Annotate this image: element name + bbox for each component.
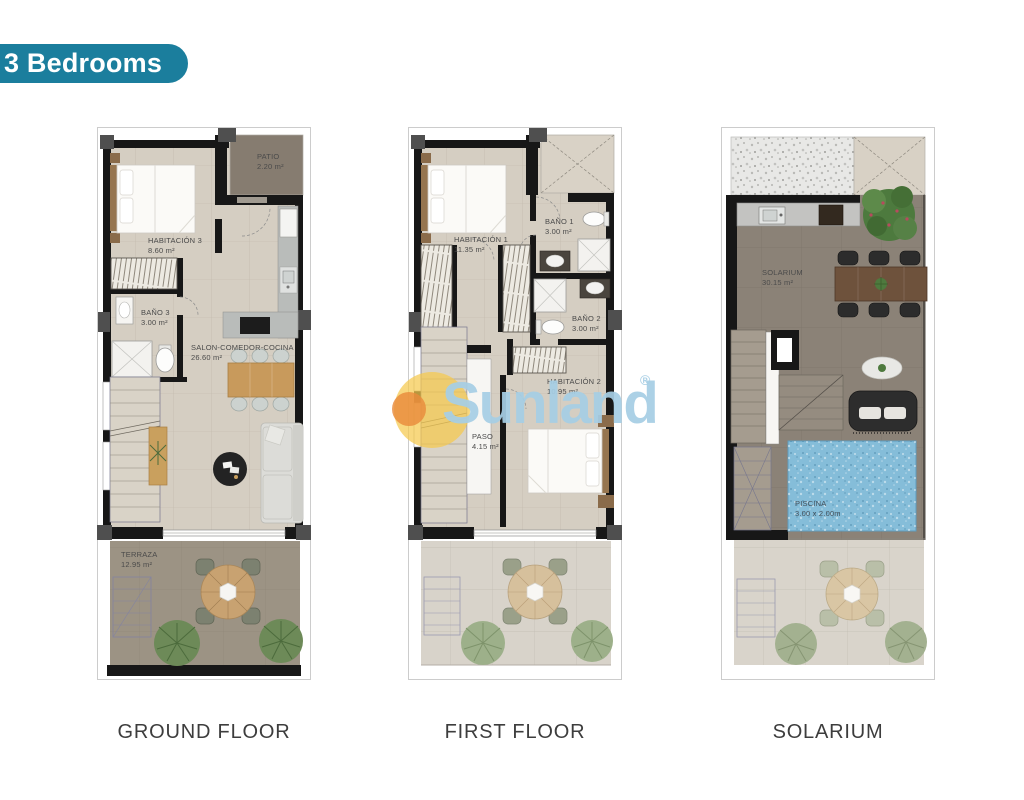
closet [513,347,566,373]
caption-first-floor: FIRST FLOOR [408,721,622,744]
bed [421,153,506,243]
tile-zone [854,137,925,195]
wardrobe [421,245,452,332]
coffee-table [862,357,902,379]
sofa [849,391,917,433]
coffee-table [213,452,247,486]
registered-mark: ® [640,372,650,388]
room-label-solarium: SOLARIUM30.15 m² [762,268,803,288]
tree-plant [862,186,917,241]
terrace-table [503,559,567,624]
room-label-patio: PATIO2.20 m² [257,152,284,172]
sliding-door [163,530,285,536]
room-label-paso: PASO4.15 m² [472,432,499,452]
wardrobe [111,258,177,289]
solarium-dining-table [835,251,927,317]
first-floor-drawing [408,127,622,680]
bed [110,153,195,243]
solarium-plan: SOLARIUM30.15 m² PISCINA3.00 x 2.00m [721,127,935,680]
solarium-drawing [721,127,935,680]
floorplan-page: 3 Bedrooms [0,0,1024,800]
room-label-habitacion-1: HABITACIÓN 111.35 m² [454,235,508,255]
console-plant [149,427,167,485]
room-label-bano-1: BAÑO 13.00 m² [545,217,574,237]
room-label-habitacion-3: HABITACIÓN 38.60 m² [148,236,202,256]
wardrobe [503,245,530,332]
room-label-habitacion-2: HABITACIÓN 210.95 m² [547,377,601,397]
terrace-table [196,559,260,624]
fridge [280,209,297,237]
caption-ground-floor: GROUND FLOOR [97,721,311,744]
void-zone [541,135,614,193]
terrace-table [820,561,884,626]
patio-window [237,197,267,203]
bedrooms-badge: 3 Bedrooms [0,44,188,83]
parapet [923,195,926,540]
room-label-bano-3: BAÑO 33.00 m² [141,308,170,328]
room-label-salon: SALON-COMEDOR-COCINA26.60 m² [191,343,294,363]
room-label-bano-2: BAÑO 23.00 m² [572,314,601,334]
sliding-door [474,530,596,536]
room-label-piscina: PISCINA3.00 x 2.00m [795,499,841,519]
ground-floor-drawing [97,127,311,680]
cooktop [240,317,270,334]
caption-solarium: SOLARIUM [721,721,935,744]
bbq-grill [819,205,843,225]
first-floor-plan: HABITACIÓN 111.35 m² BAÑO 13.00 m² BAÑO … [408,127,622,680]
room-label-terraza: TERRAZA12.95 m² [121,550,157,570]
ground-floor-plan: PATIO2.20 m² HABITACIÓN 38.60 m² BAÑO 33… [97,127,311,680]
bedrooms-badge-label: 3 Bedrooms [4,48,162,79]
sofa [261,423,303,523]
outdoor-counter [737,203,860,226]
gravel-zone [731,137,854,195]
